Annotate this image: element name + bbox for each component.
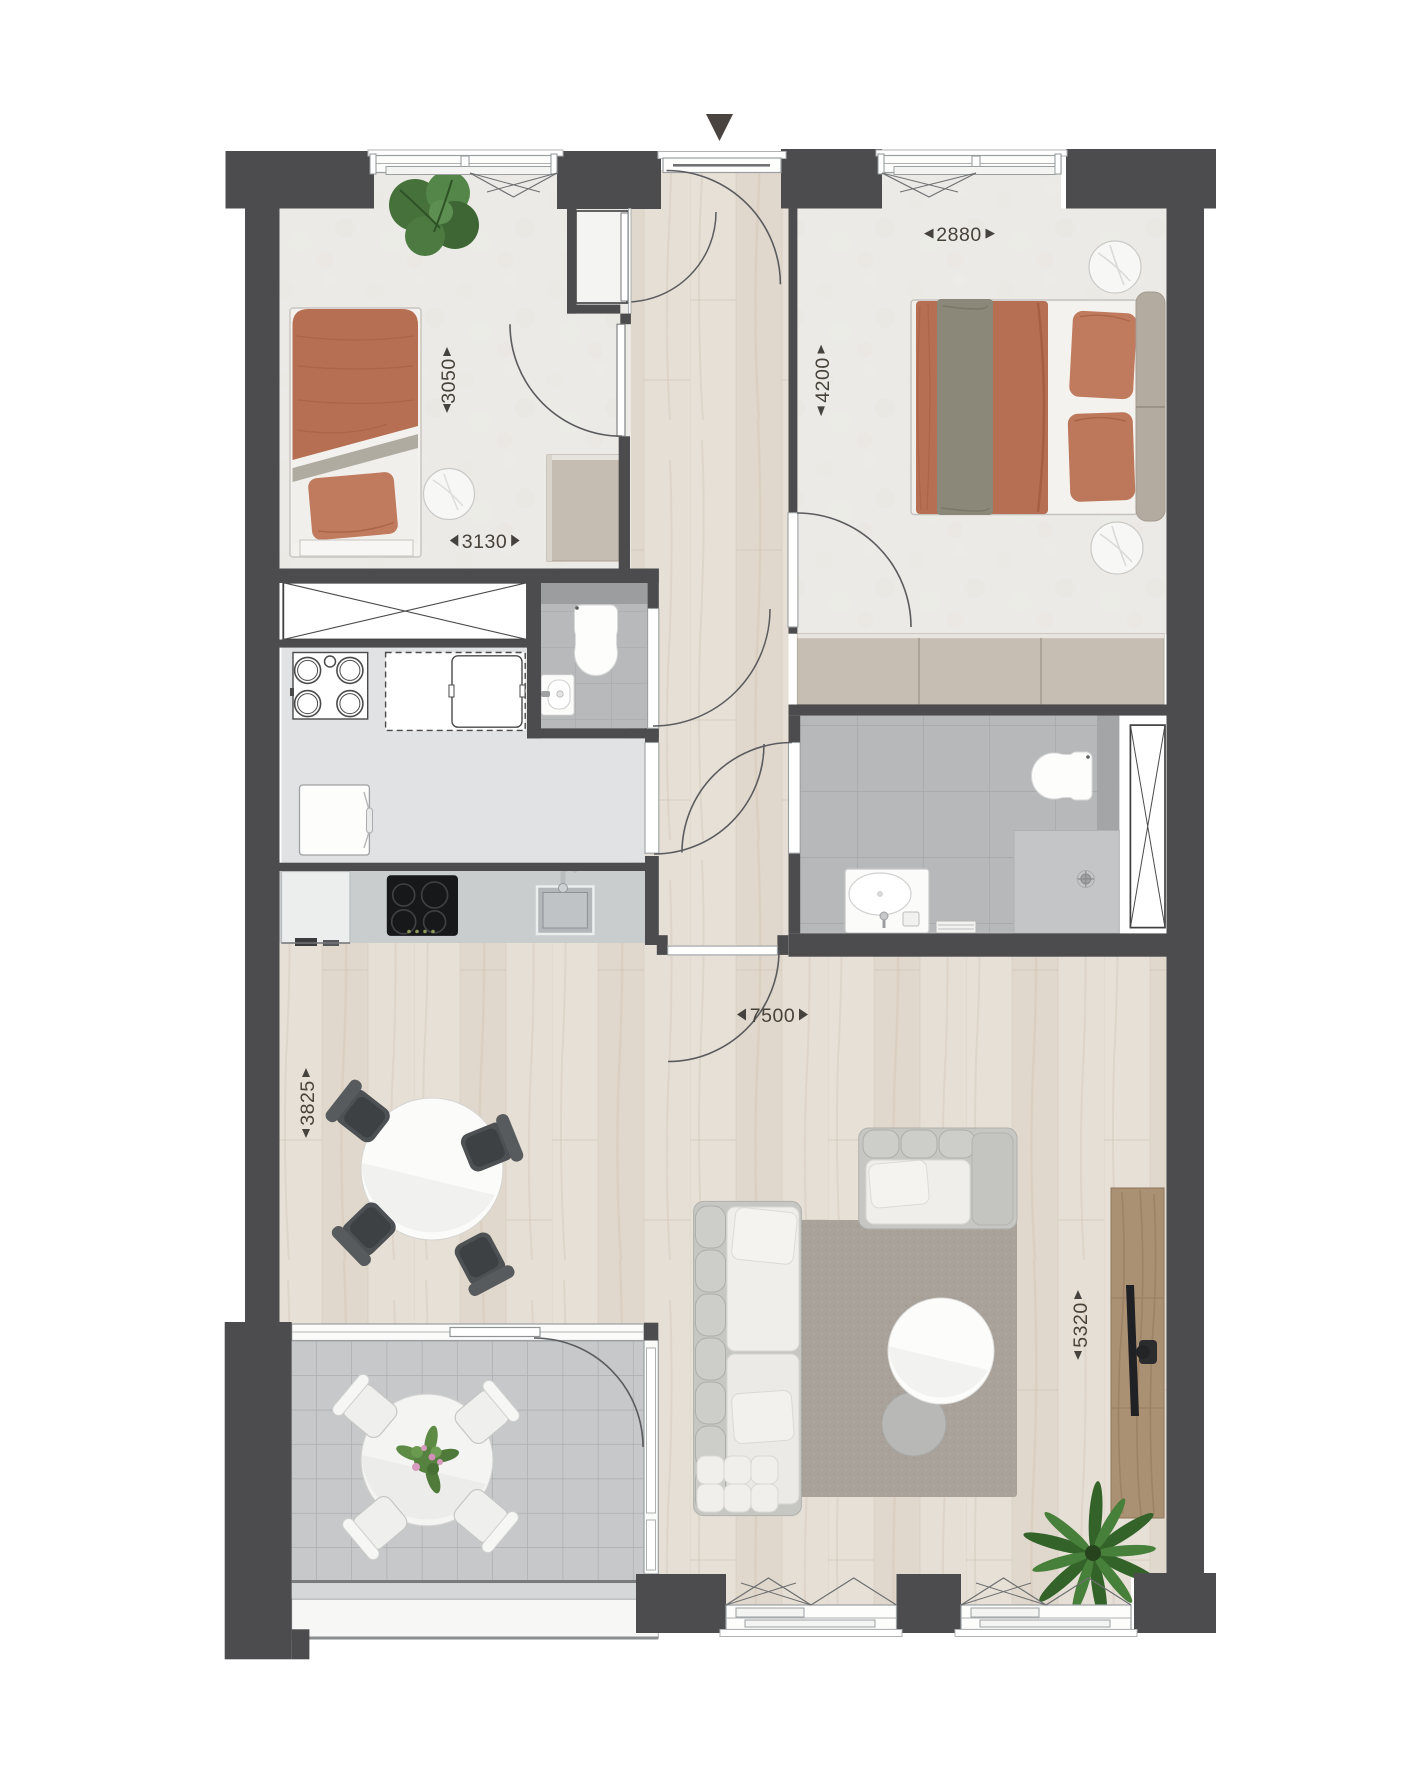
svg-text:3825: 3825	[297, 1080, 319, 1125]
svg-text:5320: 5320	[1070, 1302, 1092, 1347]
svg-text:3130: 3130	[462, 531, 507, 553]
svg-text:3050: 3050	[438, 358, 460, 403]
svg-text:2880: 2880	[936, 224, 981, 246]
svg-text:7500: 7500	[750, 1005, 795, 1027]
svg-text:4200: 4200	[812, 357, 834, 402]
